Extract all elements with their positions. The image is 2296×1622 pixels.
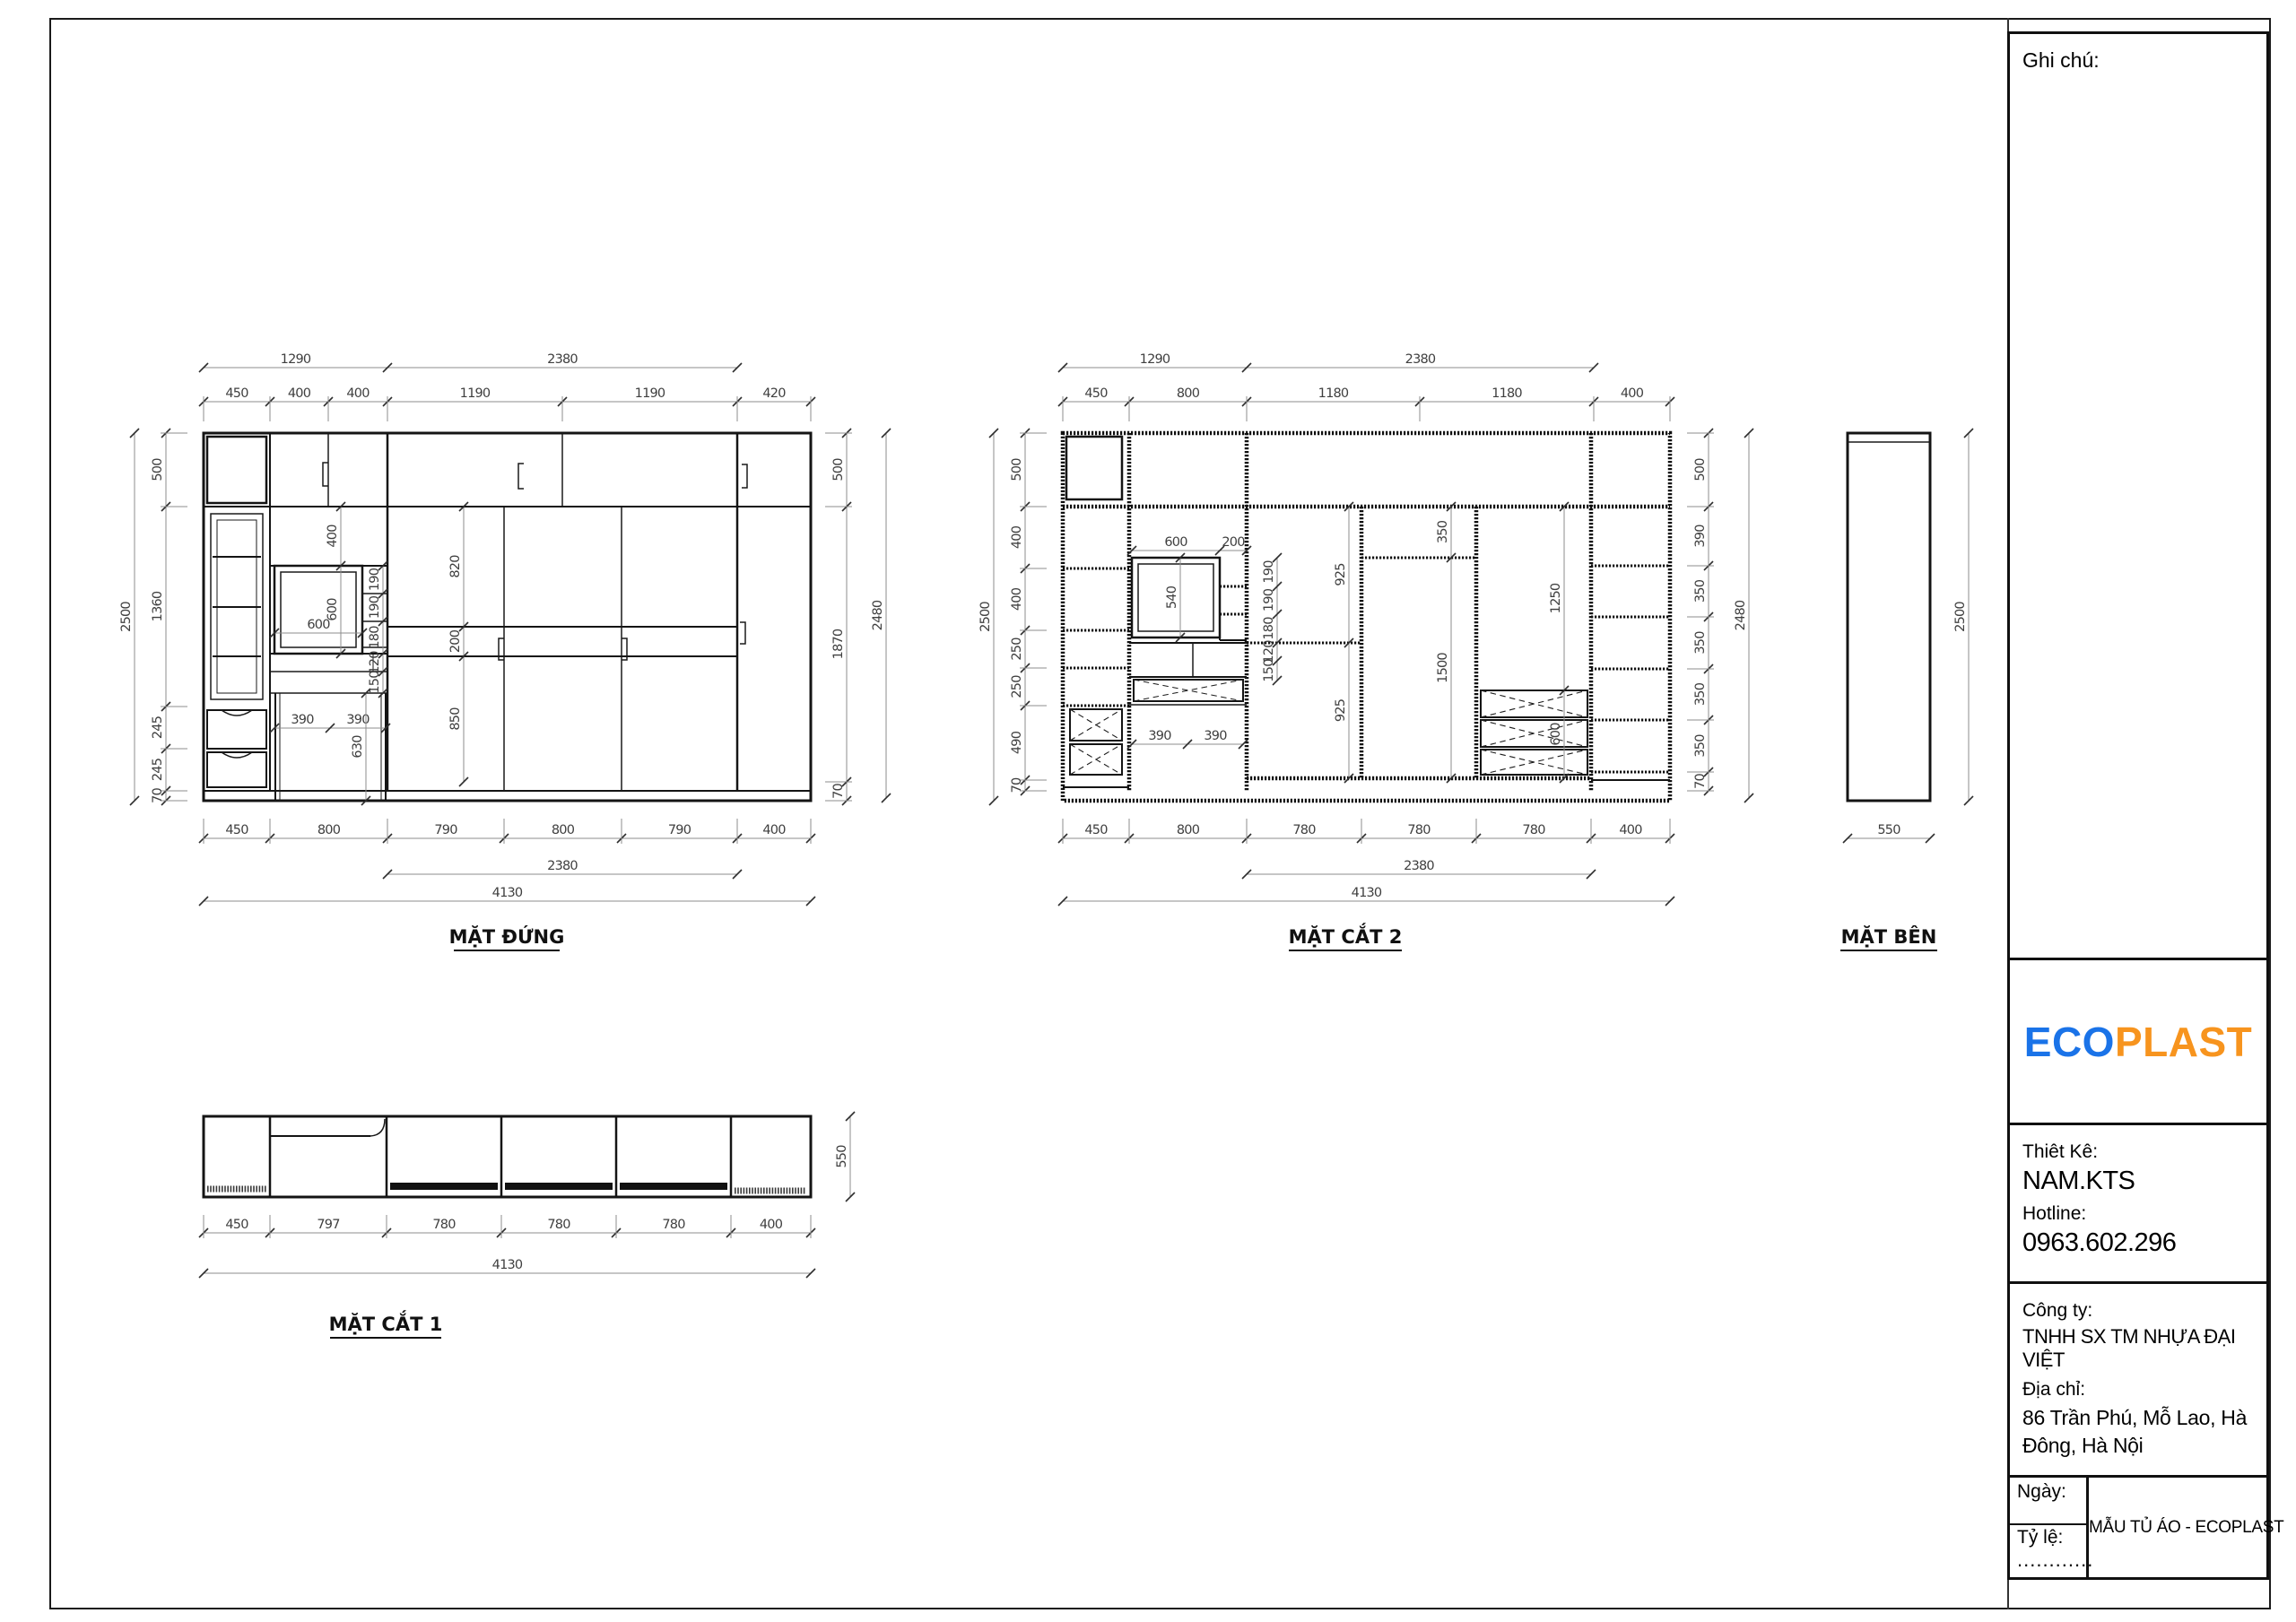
dim-label: 500 bbox=[831, 458, 846, 481]
dim-label: 450 bbox=[1084, 823, 1108, 837]
dim-label: 490 bbox=[1010, 731, 1024, 754]
dim-label: 780 bbox=[547, 1218, 570, 1232]
dim-label: 500 bbox=[151, 458, 165, 481]
dim-label: 180 bbox=[1262, 617, 1276, 640]
cad-sheet: MẶT ĐỨNG MẶT CẮT 2 MẶT BÊN MẶT CẮT 1 450… bbox=[0, 0, 2296, 1622]
notes-label: Ghi chú: bbox=[2022, 48, 2100, 72]
dim-label: 400 bbox=[288, 386, 311, 401]
dim-label: 1180 bbox=[1318, 386, 1349, 401]
dim-label: 1250 bbox=[1549, 583, 1563, 613]
dim-label: 450 bbox=[225, 823, 248, 837]
dim-label: 400 bbox=[1619, 823, 1642, 837]
dim-label: 800 bbox=[1177, 823, 1200, 837]
side-view-drawing bbox=[1848, 433, 1930, 801]
dim-label: 1290 bbox=[1140, 352, 1170, 367]
dim-label: 350 bbox=[1693, 579, 1708, 603]
title-block-footer: Ngày: Tỷ lệ: ............ MẪU TỦ ÁO - EC… bbox=[2010, 1478, 2266, 1577]
dim-label: 780 bbox=[662, 1218, 685, 1232]
dim-label: 350 bbox=[1436, 520, 1450, 543]
company-address: 86 Trần Phú, Mỗ Lao, Hà Đông, Hà Nội bbox=[2022, 1404, 2254, 1460]
dim-label: 4130 bbox=[1352, 886, 1382, 900]
top-open-box bbox=[207, 437, 266, 503]
hotline-number: 0963.602.296 bbox=[2022, 1228, 2254, 1258]
dim-label: 780 bbox=[1407, 823, 1431, 837]
company-logo: ECOPLAST bbox=[2010, 960, 2266, 1125]
dim-label: 1290 bbox=[281, 352, 311, 367]
dim-label: 600 bbox=[307, 618, 330, 632]
dim-label: 200 bbox=[448, 629, 463, 653]
dim-label: 1190 bbox=[635, 386, 665, 401]
designer-label: Thiêt Kê: bbox=[2022, 1141, 2254, 1163]
dim-label: 790 bbox=[668, 823, 691, 837]
dim-label: 2380 bbox=[1405, 352, 1436, 367]
dim-label: 820 bbox=[448, 555, 463, 578]
section-2-drawing bbox=[1063, 433, 1670, 801]
dim-label: 2500 bbox=[119, 602, 134, 632]
dim-label: 630 bbox=[351, 735, 365, 759]
dim-label: 925 bbox=[1334, 699, 1348, 722]
dim-label: 120 bbox=[368, 651, 382, 674]
scale-cell: Tỷ lệ: ............ bbox=[2010, 1525, 2086, 1577]
door-handle bbox=[323, 463, 328, 486]
dim-label: 500 bbox=[1010, 458, 1024, 481]
dim-label: 800 bbox=[1177, 386, 1200, 401]
dim-label: 2480 bbox=[871, 600, 885, 630]
dim-label: 600 bbox=[1164, 535, 1187, 550]
dim-label: 150 bbox=[1262, 659, 1276, 682]
dim-label: 797 bbox=[317, 1218, 339, 1232]
dim-label: 2500 bbox=[1953, 602, 1968, 632]
dim-label: 1180 bbox=[1492, 386, 1522, 401]
dim-label: 2380 bbox=[1404, 859, 1434, 873]
dim-label: 850 bbox=[448, 707, 463, 731]
logo-part-plast: PLAST bbox=[2115, 1018, 2252, 1066]
dim-label: 400 bbox=[1010, 587, 1024, 611]
hotline-label: Hotline: bbox=[2022, 1203, 2254, 1225]
dim-label: 190 bbox=[1262, 560, 1276, 584]
company-box: Công ty: TNHH SX TM NHỰA ĐẠI VIỆT Địa ch… bbox=[2010, 1284, 2266, 1478]
dim-label: 540 bbox=[1165, 585, 1179, 609]
dim-label: 780 bbox=[432, 1218, 456, 1232]
notes-box: Ghi chú: bbox=[2010, 34, 2266, 960]
door-handle bbox=[518, 464, 524, 489]
date-cell: Ngày: bbox=[2010, 1478, 2086, 1525]
dim-label: 390 bbox=[1148, 729, 1171, 743]
dim-label: 70 bbox=[1693, 774, 1708, 789]
drawer-section bbox=[1134, 680, 1243, 701]
section-1-drawing bbox=[204, 1116, 811, 1197]
door-handle bbox=[740, 622, 745, 644]
date-label: Ngày: bbox=[2017, 1481, 2066, 1502]
dim-label: 1500 bbox=[1436, 653, 1450, 683]
dim-label: 70 bbox=[151, 788, 165, 803]
dimension-layer: 4504004001190119042012902380500136024524… bbox=[119, 352, 1973, 1278]
dim-label: 780 bbox=[1522, 823, 1545, 837]
dim-label: 400 bbox=[1621, 386, 1644, 401]
scale-label: Tỷ lệ: bbox=[2017, 1527, 2079, 1548]
dim-label: 70 bbox=[831, 784, 846, 799]
dim-label: 350 bbox=[1693, 682, 1708, 706]
sliding-track bbox=[620, 1183, 727, 1190]
dim-label: 600 bbox=[1549, 723, 1563, 746]
dim-label: 190 bbox=[368, 595, 382, 619]
dim-label: 1870 bbox=[831, 629, 846, 659]
dim-label: 200 bbox=[1222, 535, 1245, 550]
dim-label: 390 bbox=[291, 713, 314, 727]
dim-label: 4130 bbox=[492, 1258, 523, 1272]
dim-label: 245 bbox=[151, 759, 165, 781]
dim-label: 350 bbox=[1693, 734, 1708, 758]
dim-label: 780 bbox=[1292, 823, 1316, 837]
dim-label: 2380 bbox=[547, 859, 578, 873]
scale-value: ............ bbox=[2017, 1548, 2079, 1572]
dim-label: 400 bbox=[346, 386, 370, 401]
dim-label: 190 bbox=[1262, 588, 1276, 612]
logo-part-eco: ECO bbox=[2024, 1018, 2115, 1066]
dim-label: 350 bbox=[1693, 631, 1708, 655]
project-title: MẪU TỦ ÁO - ECOPLAST bbox=[2089, 1478, 2283, 1577]
dim-label: 450 bbox=[1084, 386, 1108, 401]
view-title-front: MẶT ĐỨNG bbox=[449, 924, 565, 948]
view-title-side: MẶT BÊN bbox=[1841, 924, 1937, 948]
dim-label: 550 bbox=[835, 1145, 849, 1168]
dim-label: 400 bbox=[762, 823, 786, 837]
address-label: Địa chỉ: bbox=[2022, 1379, 2254, 1401]
title-block: Ghi chú: ECOPLAST Thiêt Kê: NAM.KTS Hotl… bbox=[2007, 31, 2269, 1580]
dim-label: 550 bbox=[1877, 823, 1900, 837]
dim-label: 2500 bbox=[978, 602, 993, 632]
dim-label: 420 bbox=[762, 386, 786, 401]
view-title-section1: MẶT CẮT 1 bbox=[329, 1310, 443, 1335]
dim-label: 4130 bbox=[492, 886, 523, 900]
company-name: TNHH SX TM NHỰA ĐẠI VIỆT bbox=[2022, 1325, 2254, 1372]
company-label: Công ty: bbox=[2022, 1300, 2254, 1322]
dim-label: 250 bbox=[1010, 638, 1024, 661]
dim-label: 800 bbox=[552, 823, 575, 837]
wardrobe-drawings: MẶT ĐỨNG MẶT CẮT 2 MẶT BÊN MẶT CẮT 1 450… bbox=[0, 0, 2296, 1622]
dim-label: 150 bbox=[368, 671, 382, 694]
dim-label: 800 bbox=[317, 823, 341, 837]
dim-label: 250 bbox=[1010, 675, 1024, 698]
designer-box: Thiêt Kê: NAM.KTS Hotline: 0963.602.296 bbox=[2010, 1125, 2266, 1284]
door-swing-arc bbox=[370, 1119, 385, 1136]
dim-label: 925 bbox=[1334, 563, 1348, 585]
dim-label: 190 bbox=[368, 568, 382, 591]
sliding-track bbox=[390, 1183, 498, 1190]
view-title-section2: MẶT CẮT 2 bbox=[1289, 923, 1403, 948]
front-elevation-drawing bbox=[204, 433, 811, 801]
dim-label: 400 bbox=[760, 1218, 783, 1232]
dim-label: 450 bbox=[225, 386, 248, 401]
dim-label: 2480 bbox=[1734, 600, 1748, 630]
dim-label: 400 bbox=[326, 525, 340, 548]
dim-label: 1190 bbox=[460, 386, 491, 401]
dim-label: 180 bbox=[368, 626, 382, 649]
dim-label: 400 bbox=[1010, 525, 1024, 549]
dim-label: 2380 bbox=[547, 352, 578, 367]
dim-label: 790 bbox=[434, 823, 457, 837]
dim-label: 1360 bbox=[151, 591, 165, 621]
sliding-track bbox=[505, 1183, 613, 1190]
dim-label: 500 bbox=[1693, 458, 1708, 481]
dim-label: 70 bbox=[1010, 777, 1024, 793]
dim-label: 390 bbox=[1693, 525, 1708, 548]
door-handle bbox=[742, 464, 747, 488]
mirror bbox=[274, 566, 362, 654]
dim-label: 390 bbox=[1204, 729, 1227, 743]
dim-label: 245 bbox=[151, 716, 165, 739]
designer-name: NAM.KTS bbox=[2022, 1167, 2254, 1196]
dim-label: 450 bbox=[225, 1218, 248, 1232]
